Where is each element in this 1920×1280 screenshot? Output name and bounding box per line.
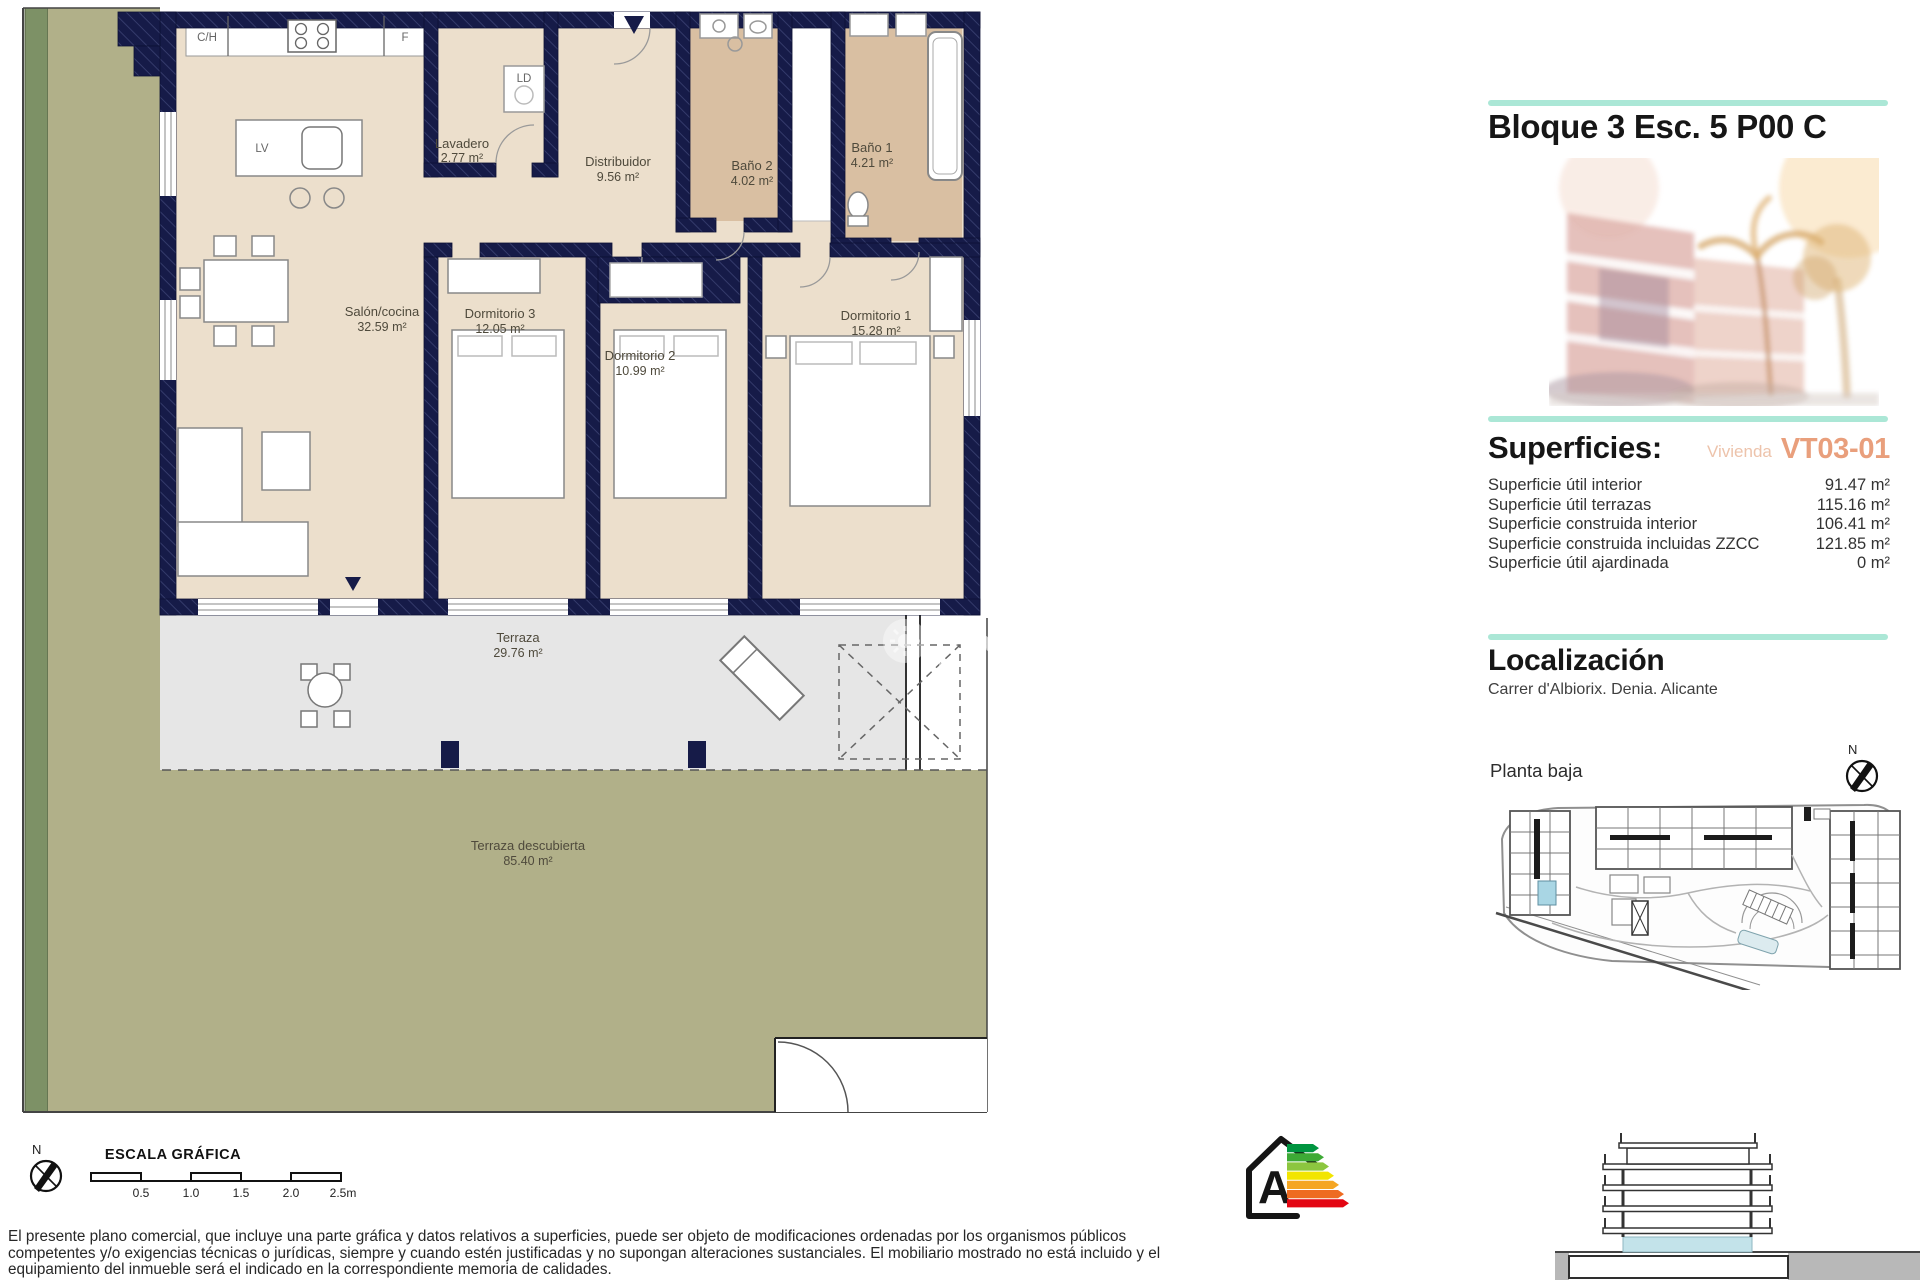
watermark-subtext: Propert: [938, 655, 984, 671]
row-value: 115.16 m²: [1817, 496, 1890, 516]
scale-tick: 1.0: [183, 1186, 200, 1200]
building-elevation: [1555, 1115, 1920, 1280]
page-title: Bloque 3 Esc. 5 P00 C: [1488, 108, 1827, 146]
room-area: 32.59 m²: [357, 320, 406, 334]
disclaimer-line: El presente plano comercial, que incluye…: [8, 1229, 1328, 1246]
superficies-panel: Superficies: Vivienda VT03-01 Superficie…: [1488, 430, 1890, 574]
room-area: 4.21 m²: [851, 156, 893, 170]
disclaimer-text: El presente plano comercial, que incluye…: [8, 1229, 1328, 1279]
watermark-text: Ova: [936, 625, 991, 658]
wardrobe: [930, 257, 962, 331]
toilet: [848, 192, 868, 218]
terrace-column: [688, 741, 706, 768]
compass-icon: N: [1832, 740, 1892, 800]
wardrobe: [448, 259, 540, 293]
room-label: Dormitorio 3: [465, 306, 536, 321]
kitchen-label-ld: LD: [517, 73, 532, 85]
row-label: Superficie construida interior: [1488, 515, 1697, 535]
room-label: Lavadero: [435, 136, 489, 151]
row-label: Superficie construida incluidas ZZCC: [1488, 535, 1759, 555]
divider-line: [1488, 634, 1888, 640]
room-area: 2.77 m²: [441, 151, 483, 165]
room-label: Terraza: [496, 630, 540, 645]
vivienda-code: VT03-01: [1781, 433, 1890, 466]
row-label: Superficie útil terrazas: [1488, 496, 1651, 516]
north-label: N: [32, 1142, 41, 1157]
table-row: Superficie útil interior 91.47 m²: [1488, 476, 1890, 496]
row-label: Superficie útil interior: [1488, 476, 1642, 496]
address: Carrer d'Albiorix. Denia. Alicante: [1488, 681, 1718, 699]
highlighted-unit: [1538, 881, 1556, 905]
room-label: Baño 1: [851, 140, 892, 155]
room-area: 10.99 m²: [615, 364, 664, 378]
room-area: 4.02 m²: [731, 174, 773, 188]
room-label: Terraza descubierta: [471, 838, 586, 853]
escala-heading: ESCALA GRÁFICA: [105, 1146, 241, 1163]
divider-line: [1488, 100, 1888, 106]
sofa: [178, 522, 308, 576]
row-value: 0 m²: [1857, 554, 1890, 574]
disclaimer-line: equipamiento del inmueble será el indica…: [8, 1262, 1328, 1279]
room-area: 85.40 m²: [503, 854, 552, 868]
vivienda-label: Vivienda: [1707, 442, 1772, 466]
room-label: Baño 2: [731, 158, 772, 173]
row-value: 121.85 m²: [1816, 535, 1890, 555]
dining-table: [204, 260, 288, 322]
scale-tick: 2.0: [283, 1186, 300, 1200]
scale-tick: 0.5: [133, 1186, 150, 1200]
localizacion-heading: Localización: [1488, 644, 1718, 678]
table-row: Superficie construida incluidas ZZCC 121…: [1488, 535, 1890, 555]
kitchen-label-f: F: [401, 32, 408, 44]
side-table: [262, 432, 310, 490]
superficies-table: Superficie útil interior 91.47 m² Superf…: [1488, 476, 1890, 574]
row-label: Superficie útil ajardinada: [1488, 554, 1669, 574]
ground-floor-highlight: [1623, 1237, 1752, 1252]
room-label: Distribuidor: [585, 154, 651, 169]
site-plan: [1492, 795, 1912, 990]
north-label: N: [1848, 742, 1857, 757]
divider-line: [1488, 416, 1888, 422]
building-block-top: [1596, 807, 1792, 869]
building-watercolor-image: [1549, 158, 1879, 406]
plot-entrance: [775, 1038, 987, 1112]
sofa-chaise: [178, 428, 242, 526]
room-area: 9.56 m²: [597, 170, 639, 184]
table-row: Superficie útil ajardinada 0 m²: [1488, 554, 1890, 574]
room-area: 12.05 m²: [475, 322, 524, 336]
building-block-right: [1830, 811, 1900, 969]
terrace: [160, 615, 987, 770]
sink: [302, 127, 342, 169]
row-value: 91.47 m²: [1825, 476, 1890, 496]
energy-letter: A: [1258, 1161, 1291, 1213]
room-area: 15.28 m²: [851, 324, 900, 338]
room-label: Dormitorio 2: [605, 348, 676, 363]
terrace-column: [441, 741, 459, 768]
scale-tick: 1.5: [233, 1186, 250, 1200]
building-block-left: [1510, 811, 1570, 915]
room-label: Dormitorio 1: [841, 308, 912, 323]
energy-rating-icon: A: [1235, 1126, 1357, 1221]
scale-tick: 2.5m: [330, 1186, 357, 1200]
kitchen-label-ch: C/H: [197, 32, 217, 44]
floor-plan: Salón/cocina 32.59 m² Dormitorio 3 12.05…: [0, 0, 1010, 1115]
graphic-scale: ESCALA GRÁFICA 0.5 1.0 1.5 2.0 2.5m: [85, 1143, 375, 1210]
row-value: 106.41 m²: [1816, 515, 1890, 535]
table-row: Superficie útil terrazas 115.16 m²: [1488, 496, 1890, 516]
room-area: 29.76 m²: [493, 646, 542, 660]
superficies-heading: Superficies:: [1488, 430, 1662, 466]
room-label: Salón/cocina: [345, 304, 420, 319]
disclaimer-line: competentes y/o exigencias técnicas o ju…: [8, 1246, 1328, 1263]
kitchen-label-lv: LV: [255, 143, 269, 155]
hob: [288, 20, 336, 52]
compass-icon: N: [16, 1140, 76, 1200]
localizacion-panel: Localización Carrer d'Albiorix. Denia. A…: [1488, 644, 1718, 699]
planta-baja-caption: Planta baja: [1490, 760, 1583, 782]
table-row: Superficie construida interior 106.41 m²: [1488, 515, 1890, 535]
